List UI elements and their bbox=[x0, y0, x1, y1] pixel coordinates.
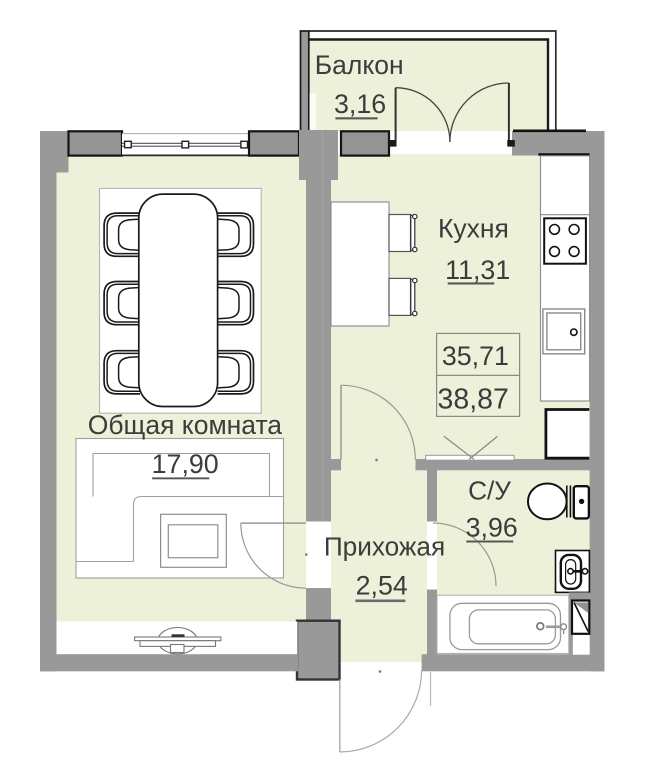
svg-text:38,87: 38,87 bbox=[438, 384, 509, 416]
svg-text:3,16: 3,16 bbox=[334, 89, 386, 119]
svg-text:Балкон: Балкон bbox=[315, 50, 404, 80]
svg-text:11,31: 11,31 bbox=[445, 255, 510, 285]
svg-text:Прихожая: Прихожая bbox=[324, 531, 445, 561]
svg-text:17,90: 17,90 bbox=[152, 449, 219, 479]
svg-text:2,54: 2,54 bbox=[356, 571, 408, 601]
svg-text:3,96: 3,96 bbox=[466, 513, 518, 543]
svg-text:35,71: 35,71 bbox=[442, 341, 509, 371]
svg-text:С/У: С/У bbox=[468, 476, 511, 506]
svg-text:Кухня: Кухня bbox=[438, 214, 509, 244]
svg-text:Общая комната: Общая комната bbox=[88, 410, 283, 440]
